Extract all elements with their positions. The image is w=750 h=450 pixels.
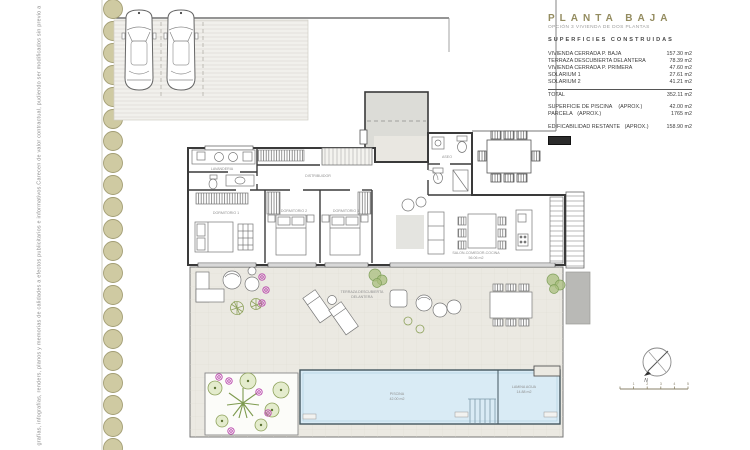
title-block: PLANTA BAJA OPCIÓN 3 VIVIENDA DE DOS PLA… — [548, 13, 692, 145]
svg-text:1: 1 — [633, 382, 635, 386]
kitchen-cabinets-icon — [550, 197, 563, 263]
side-wall — [566, 272, 590, 324]
floor-plan-sheet: grafías, infografías, renders, planos y … — [0, 0, 750, 450]
row-value: 1765 m2 — [671, 111, 692, 118]
sofa-icon — [428, 212, 444, 254]
room-label-piscina: PISCINA — [390, 392, 405, 396]
room-label-terraza: TERRAZA DESCUBIERTA — [341, 290, 384, 294]
closet-band — [258, 150, 304, 161]
interior-stairs — [322, 148, 372, 165]
room-label-lamina-area: 14.88 m2 — [517, 390, 532, 394]
total-label: TOTAL — [548, 92, 565, 99]
row-value: 47.60 m2 — [670, 65, 692, 72]
room-label-lavanderia: LAVANDERIA — [211, 167, 234, 171]
total-row: TOTAL 352.11 m2 — [548, 89, 692, 99]
room-label-distribuidor: DISTRIBUIDOR — [305, 174, 331, 178]
svg-text:2: 2 — [646, 382, 648, 386]
table-row: TERRAZA DESCUBIERTA DELANTERA 78.39 m2 — [548, 58, 692, 65]
car — [164, 10, 198, 90]
table-row: EDIFICABILIDAD RESTANTE (APROX.) 158.90 … — [548, 124, 692, 131]
row-label: VIVIENDA CERRADA P. PRIMERA — [548, 65, 632, 72]
room-label-lamina: LAMINA AGUA — [512, 385, 537, 389]
legend-swatch — [548, 136, 571, 145]
table-row: SUPERFICIE DE PISCINA (APROX.) 42.00 m2 — [548, 104, 692, 111]
outdoor-dining-upper — [478, 131, 540, 182]
row-value: 27.61 m2 — [670, 72, 692, 79]
page-title: PLANTA BAJA — [548, 13, 692, 24]
row-value: 157.30 m2 — [667, 51, 692, 58]
dining-table-icon — [468, 214, 496, 248]
table-row: SOLARIUM 1 27.61 m2 — [548, 72, 692, 79]
room-label-piscina-area: 42.00 m2 — [390, 397, 405, 401]
table-row: VIVIENDA CERRADA P. PRIMERA 47.60 m2 — [548, 65, 692, 72]
table-row: VIVIENDA CERRADA P. BAJA 157.30 m2 — [548, 51, 692, 58]
rug — [396, 215, 424, 249]
row-value: 78.39 m2 — [670, 58, 692, 65]
compass: N — [643, 348, 671, 384]
elevation-tag — [455, 412, 468, 417]
row-value: 158.90 m2 — [667, 124, 692, 131]
room-label-terraza2: DELANTERA — [351, 295, 373, 299]
row-label: EDIFICABILIDAD RESTANTE (APROX.) — [548, 124, 649, 131]
section-heading: SUPERFICIES CONSTRUIDAS — [548, 37, 692, 43]
pool-deck-notch — [534, 366, 560, 376]
svg-text:5: 5 — [687, 382, 689, 386]
table-row: SOLARIUM 2 41.21 m2 — [548, 79, 692, 86]
total-value: 352.11 m2 — [667, 92, 692, 99]
scale-bar: 1 2 3 4 5 — [620, 382, 689, 389]
svg-text:3: 3 — [660, 382, 662, 386]
wardrobe-icon — [358, 192, 371, 214]
pool — [300, 366, 560, 424]
row-label: VIVIENDA CERRADA P. BAJA — [548, 51, 621, 58]
row-label: PARCELA (APROX.) — [548, 111, 601, 118]
row-value: 42.00 m2 — [670, 104, 692, 111]
svg-text:4: 4 — [673, 382, 675, 386]
row-label: SOLARIUM 2 — [548, 79, 581, 86]
entry-porch — [374, 136, 429, 162]
row-value: 41.21 m2 — [670, 79, 692, 86]
table-row: PARCELA (APROX.) 1765 m2 — [548, 111, 692, 118]
laundry-room — [192, 150, 255, 164]
wardrobe-icon — [196, 193, 248, 204]
room-label-dormitorio3: DORMITORIO 3 — [333, 209, 359, 213]
row-label: SOLARIUM 1 — [548, 72, 581, 79]
room-label-dormitorio1: DORMITORIO 1 — [213, 211, 239, 215]
page-subtitle: OPCIÓN 3 VIVIENDA DE DOS PLANTAS — [548, 25, 692, 30]
elevation-tag — [303, 414, 316, 419]
row-label: SUPERFICIE DE PISCINA (APROX.) — [548, 104, 642, 111]
car — [122, 10, 156, 90]
planter-bed — [205, 373, 298, 435]
room-label-aseo: ASEO — [442, 155, 452, 159]
exterior-stairs — [566, 192, 584, 268]
room-label-salon: SALON-COMEDOR-COCINA — [452, 251, 500, 255]
room-label-dormitorio2: DORMITORIO 2 — [281, 209, 307, 213]
room-label-salon-area: 56.06 m2 — [469, 256, 484, 260]
surfaces-table: VIVIENDA CERRADA P. BAJA 157.30 m2 TERRA… — [548, 51, 692, 145]
outdoor-dining-lower — [490, 292, 532, 318]
elevation-tag — [544, 412, 557, 417]
row-label: TERRAZA DESCUBIERTA DELANTERA — [548, 58, 646, 65]
wardrobe-icon — [267, 192, 280, 214]
